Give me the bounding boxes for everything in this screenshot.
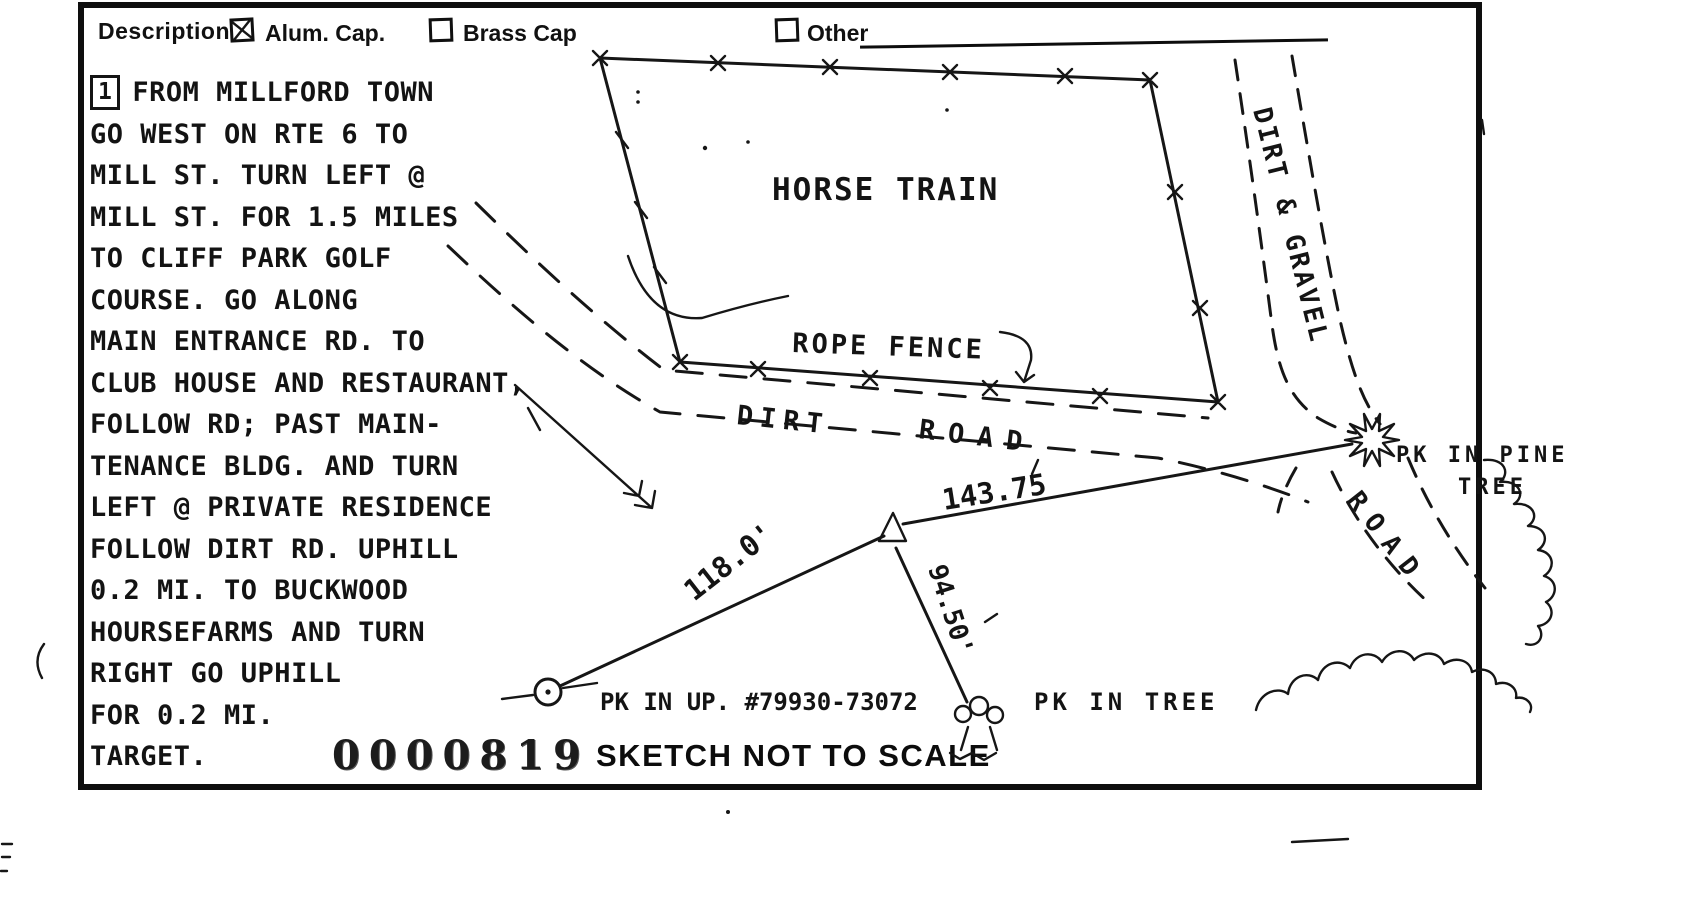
checkbox-x-mark-icon: [228, 16, 255, 43]
directions-line: FOR 0.2 MI.: [90, 695, 630, 737]
directions-line: 0.2 MI. TO BUCKWOOD: [90, 570, 630, 612]
other-checkbox: [775, 18, 800, 43]
other-label: Other: [807, 20, 868, 47]
description-label: Description:: [98, 18, 238, 45]
directions-line: RIGHT GO UPHILL: [90, 653, 630, 695]
alum-cap-label: Alum. Cap.: [265, 20, 385, 47]
stamp-number: 0000819: [332, 732, 590, 779]
directions-line: LEFT @ PRIVATE RESIDENCE: [90, 487, 630, 529]
brass-cap-checkbox: [429, 18, 454, 43]
directions-line: TENANCE BLDG. AND TURN: [90, 446, 630, 488]
description-header: Description: Alum. Cap. Brass Cap Other: [84, 8, 1476, 60]
scanned-survey-sketch-page: Description: Alum. Cap. Brass Cap Other …: [0, 0, 1696, 913]
directions-line: FOLLOW DIRT RD. UPHILL: [90, 529, 630, 571]
handwritten-directions: 1FROM MILLFORD TOWN GO WEST ON RTE 6 TO …: [90, 72, 630, 778]
other-blank-line: [860, 38, 1328, 48]
directions-line: FOLLOW RD; PAST MAIN-: [90, 404, 630, 446]
directions-line: CLUB HOUSE AND RESTAURANT,: [90, 363, 630, 405]
directions-line: TO CLIFF PARK GOLF: [90, 238, 630, 280]
directions-line: 1FROM MILLFORD TOWN: [90, 72, 630, 114]
sketch-not-to-scale-note: SKETCH NOT TO SCALE: [596, 738, 991, 774]
directions-line: COURSE. GO ALONG: [90, 280, 630, 322]
form-border: Description: Alum. Cap. Brass Cap Other …: [78, 2, 1482, 790]
alum-cap-checkbox: [229, 17, 254, 42]
directions-line: GO WEST ON RTE 6 TO: [90, 114, 630, 156]
brass-cap-label: Brass Cap: [463, 20, 577, 47]
directions-line: MAIN ENTRANCE RD. TO: [90, 321, 630, 363]
line-number-marker: 1: [90, 75, 120, 110]
directions-line: MILL ST. FOR 1.5 MILES: [90, 197, 630, 239]
directions-line: MILL ST. TURN LEFT @: [90, 155, 630, 197]
tree-canopy-scribble-right: [1484, 460, 1555, 645]
directions-line: HOURSEFARMS AND TURN: [90, 612, 630, 654]
